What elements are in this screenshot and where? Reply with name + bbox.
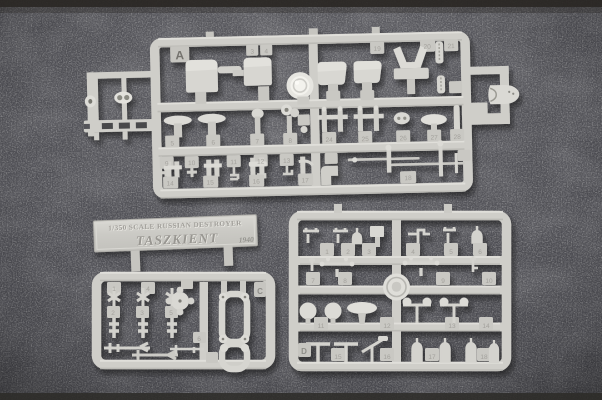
svg-text:19: 19 (374, 46, 382, 53)
svg-text:6: 6 (197, 336, 201, 343)
svg-text:27: 27 (431, 134, 439, 141)
svg-text:13: 13 (448, 323, 456, 330)
svg-text:5: 5 (169, 310, 173, 317)
svg-text:28: 28 (454, 134, 462, 141)
svg-text:7: 7 (255, 139, 259, 146)
svg-text:14: 14 (167, 180, 175, 187)
svg-text:3: 3 (367, 249, 371, 256)
svg-text:16: 16 (383, 354, 391, 361)
svg-text:24: 24 (326, 137, 334, 144)
svg-text:14: 14 (482, 323, 490, 330)
svg-text:9: 9 (165, 161, 169, 168)
svg-text:3: 3 (250, 49, 254, 56)
svg-text:C: C (257, 287, 263, 296)
svg-text:11: 11 (318, 323, 325, 330)
svg-text:2: 2 (111, 310, 115, 317)
svg-text:20: 20 (423, 44, 431, 51)
svg-text:9: 9 (441, 278, 445, 285)
svg-text:5: 5 (449, 249, 453, 256)
svg-text:15: 15 (334, 354, 342, 361)
svg-text:4: 4 (411, 249, 415, 256)
svg-text:D: D (301, 347, 307, 356)
svg-text:25: 25 (362, 136, 370, 143)
svg-text:3: 3 (140, 310, 144, 317)
svg-text:4: 4 (146, 286, 150, 293)
svg-text:16: 16 (252, 179, 260, 186)
svg-text:A: A (175, 48, 184, 62)
svg-text:13: 13 (283, 158, 291, 165)
svg-text:1: 1 (325, 249, 329, 256)
svg-text:18: 18 (404, 175, 412, 182)
svg-text:6: 6 (211, 140, 215, 147)
svg-text:10: 10 (188, 160, 196, 167)
svg-text:12: 12 (383, 323, 391, 330)
svg-text:8: 8 (288, 138, 292, 145)
svg-text:6: 6 (478, 249, 482, 256)
svg-text:8: 8 (343, 278, 347, 285)
svg-text:2: 2 (346, 249, 350, 256)
svg-text:17: 17 (301, 177, 309, 184)
svg-text:5: 5 (170, 140, 174, 147)
svg-text:21: 21 (447, 43, 455, 50)
svg-text:12: 12 (257, 158, 265, 165)
svg-text:10: 10 (485, 278, 493, 285)
svg-text:17: 17 (428, 354, 436, 361)
svg-text:11: 11 (230, 159, 237, 166)
svg-text:18: 18 (480, 354, 488, 361)
svg-text:1940: 1940 (239, 235, 255, 245)
svg-text:TASZKIENT: TASZKIENT (136, 230, 219, 248)
svg-text:26: 26 (400, 135, 408, 142)
svg-text:4: 4 (264, 48, 268, 55)
svg-text:7: 7 (311, 278, 315, 285)
svg-text:1: 1 (112, 286, 116, 293)
svg-text:15: 15 (206, 180, 214, 187)
